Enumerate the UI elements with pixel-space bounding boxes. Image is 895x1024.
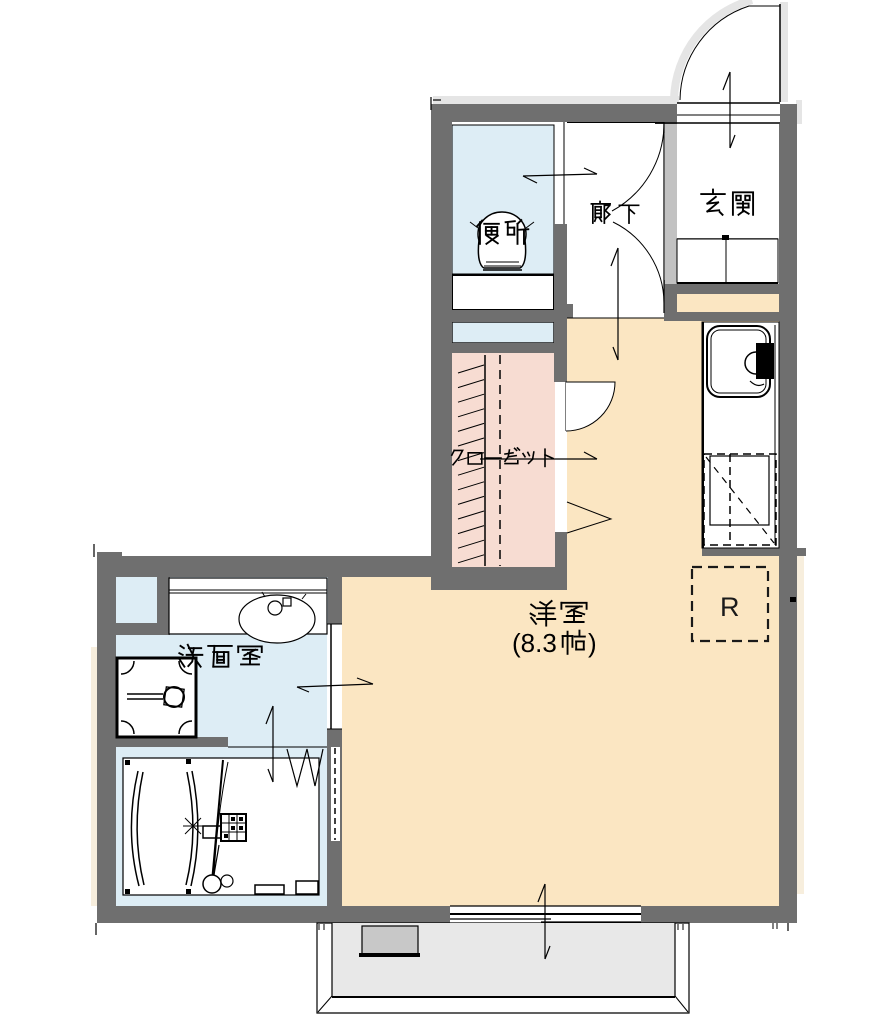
svg-text:): ): [588, 628, 597, 658]
svg-text:R: R: [720, 592, 740, 622]
svg-text:(8.3: (8.3: [512, 628, 557, 658]
